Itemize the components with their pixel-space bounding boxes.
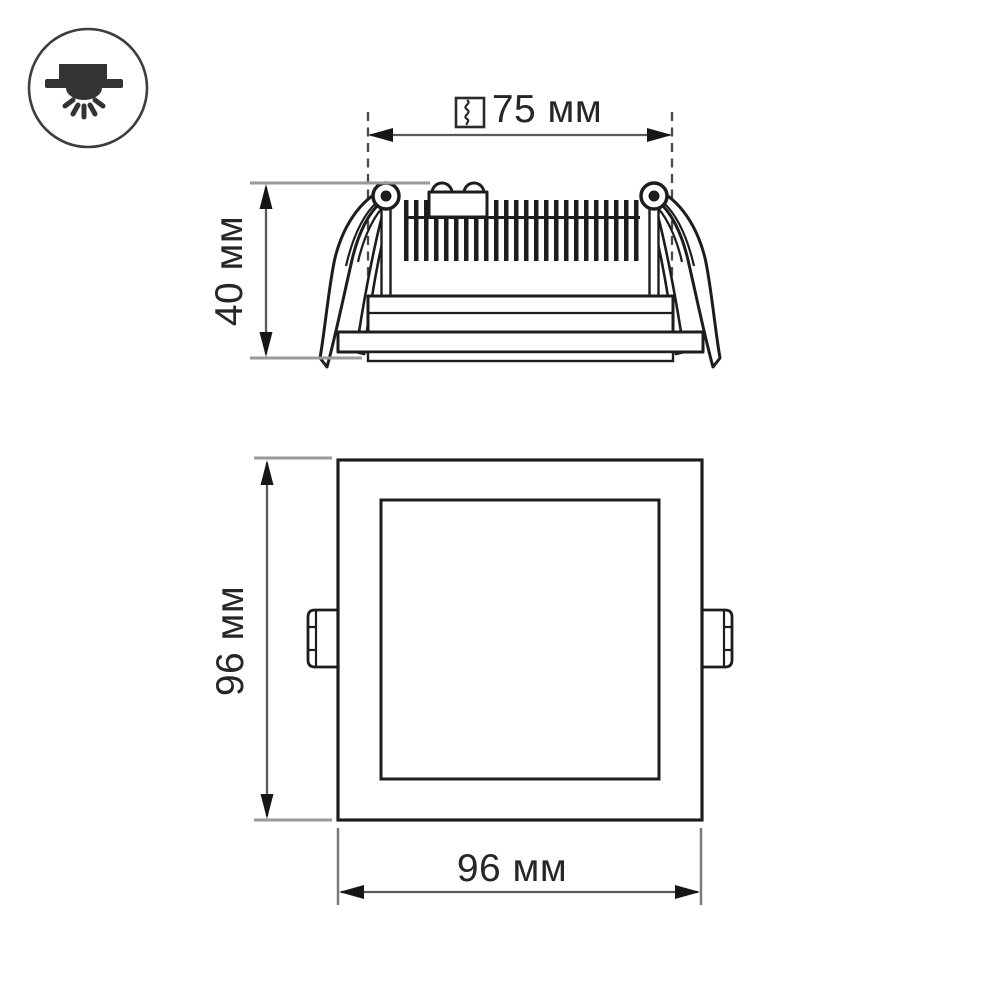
arrow-left (339, 885, 364, 899)
front-glass-panel (381, 500, 659, 779)
clip-post-right (650, 200, 659, 297)
body-flange (338, 332, 703, 352)
arrow-down (261, 794, 274, 819)
technical-drawing-page: 75 мм 40 мм 96 мм (0, 0, 1000, 1000)
side-view (320, 112, 720, 367)
icon-ceiling-flange (45, 79, 123, 88)
arrow-left (368, 128, 393, 142)
technical-drawing: 75 мм 40 мм 96 мм (0, 0, 1000, 1000)
fixture-body (338, 296, 703, 361)
arrow-right (647, 128, 672, 142)
dimension-label: 96 мм (457, 847, 567, 890)
arrow-down (260, 332, 273, 357)
front-view (308, 460, 732, 820)
clip-pivot-right-pin (649, 191, 660, 202)
clip-post-left (382, 200, 391, 297)
arrow-right (675, 885, 700, 899)
dimension-label: 40 мм (208, 216, 251, 326)
arrow-up (260, 184, 273, 209)
arrow-up (261, 460, 274, 485)
dimension-label: 75 мм (492, 88, 602, 131)
recessed-downlight-icon (29, 29, 147, 147)
dimension-width-96mm: 96 мм (338, 828, 701, 905)
front-clip-right (700, 610, 732, 667)
front-clip-left (308, 610, 340, 667)
body-glass (368, 352, 673, 361)
dimension-label: 96 мм (209, 586, 252, 696)
cutout-hole-icon (456, 98, 484, 127)
terminal-block (429, 183, 487, 217)
dimension-cutout-75mm: 75 мм (368, 88, 672, 142)
clip-pivot-left-pin (381, 191, 392, 202)
